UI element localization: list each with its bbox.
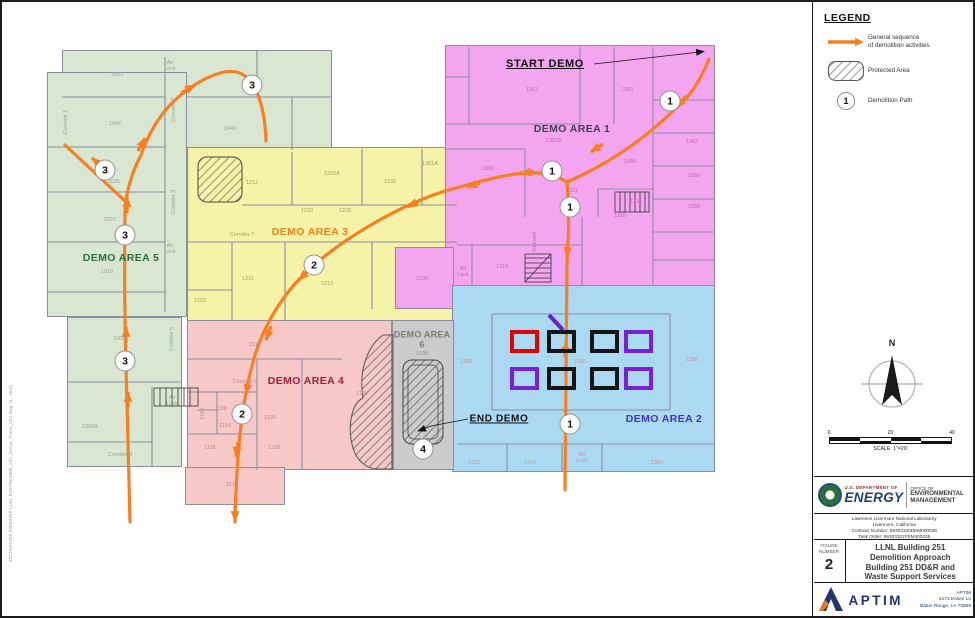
- demo-area-3-label: DEMO AREA 3: [272, 226, 349, 238]
- room-label: 1354: [651, 460, 663, 466]
- legend-item-label: General sequence of demolition activitie…: [868, 34, 930, 50]
- scale-caption: SCALE: 1"=20': [829, 446, 952, 452]
- path-marker: 3: [115, 225, 136, 246]
- room-label: Corridor 2: [171, 98, 177, 122]
- room-label: 1211: [242, 276, 254, 282]
- room-label: 1358: [688, 204, 700, 210]
- room-label: Air Lock: [575, 452, 589, 464]
- figure-label: NUMBER: [814, 549, 845, 555]
- room-label: Air Lock: [163, 60, 177, 72]
- room-label: 1203: [194, 298, 206, 304]
- room-label: 1314: [524, 460, 536, 466]
- equipment-square-purple: [510, 367, 539, 390]
- legend-item-label: Demolition Path: [868, 97, 912, 105]
- demo-area-4-label: DEMO AREA 4: [268, 375, 345, 387]
- room-label: 1102: [200, 408, 206, 420]
- room-label: 1005: [113, 336, 125, 342]
- north-label: N: [889, 338, 896, 348]
- equipment-tick: [549, 315, 563, 330]
- room-label: Corridor 1: [63, 110, 69, 134]
- room-label: 1360: [688, 173, 700, 179]
- path-marker: 2: [304, 255, 325, 276]
- room-label: 1019: [101, 269, 113, 275]
- equipment-square-red: [510, 330, 539, 353]
- north-arrow: [861, 355, 923, 407]
- room-label: 1228: [339, 208, 351, 214]
- equipment-square-black: [590, 367, 619, 390]
- demo-area-6-label: DEMO AREA 6: [393, 330, 451, 351]
- room-label: Corridor 3: [171, 190, 177, 214]
- room-label: Corridor 7: [230, 232, 254, 238]
- room-label: 1150: [356, 391, 368, 397]
- end-demo-label: END DEMO: [470, 414, 529, 425]
- equipment-square-purple: [624, 330, 653, 353]
- room-label: 1114: [219, 423, 230, 429]
- doe-wordmark: ENERGY: [845, 491, 904, 505]
- laboratory-info: Lawrence Livermore National Laboratory L…: [814, 513, 975, 539]
- room-label: 1053: [111, 72, 123, 78]
- room-label: 1313: [526, 87, 538, 93]
- drawing-sheet: 2023\501806.00003459 LLNL B251\501806_25…: [0, 0, 975, 618]
- path-marker: 1: [560, 197, 581, 218]
- room-label: 1312: [468, 460, 480, 466]
- title-line: Demolition Approach: [846, 553, 975, 563]
- aptim-wordmark: APTIM: [849, 593, 904, 608]
- room-label: 1212: [246, 180, 258, 186]
- room-label: 1117: [249, 342, 260, 348]
- room-label: 1320: [574, 359, 586, 365]
- room-label: 1356: [686, 357, 698, 363]
- title-line: LLNL Building 251: [846, 543, 975, 553]
- legend-item-sequence: General sequence of demolition activitie…: [824, 34, 930, 50]
- room-label: 1001A: [82, 424, 98, 430]
- room-label: 1118: [226, 482, 237, 488]
- doe-seal-icon: [818, 483, 842, 507]
- equipment-square-black: [590, 330, 619, 353]
- room-label: 1105: [416, 351, 428, 357]
- title-line: Waste Support Services: [846, 572, 975, 582]
- room-label: Corridor 4: [108, 452, 132, 458]
- room-label: Air Lock: [163, 243, 177, 255]
- aptim-address: APTIM 4171 Essen Ln Baton Rouge, LA 7080…: [920, 591, 971, 610]
- room-label: 1108: [215, 406, 227, 412]
- aptim-row: APTIM APTIM 4171 Essen Ln Baton Rouge, L…: [814, 582, 975, 618]
- legend-item-path: 1 Demolition Path: [824, 92, 930, 110]
- room-label: 1219: [321, 281, 333, 287]
- room-label: 1027: [104, 217, 116, 223]
- scale-tick: 40: [949, 430, 955, 436]
- path-marker: 3: [95, 160, 116, 181]
- office-line2: MANAGEMENT: [910, 498, 964, 505]
- legend: LEGEND General sequence of demolition ac…: [824, 12, 930, 110]
- room-label: 1302: [460, 359, 472, 365]
- title-line: Building 251 DD&R and: [846, 563, 975, 573]
- room-label: Air Lock: [165, 395, 179, 407]
- drawing-title: LLNL Building 251 Demolition Approach Bu…: [846, 540, 975, 582]
- doe-logo-row: U.S. DEPARTMENT OF ENERGY OFFICE OF ENVI…: [814, 476, 975, 513]
- room-label: 1331: [630, 199, 642, 205]
- figure-number: 2: [814, 556, 845, 573]
- room-label: 1301A: [422, 161, 438, 167]
- path-marker: 1: [560, 414, 581, 435]
- figure-title-row: FIGURE NUMBER 2 LLNL Building 251 Demoli…: [814, 539, 975, 582]
- equipment-square-purple: [624, 367, 653, 390]
- legend-title: LEGEND: [824, 12, 930, 24]
- room-label: 1301: [482, 166, 494, 172]
- path-marker: 1: [660, 91, 681, 112]
- scale-bar-graphic: [829, 437, 952, 444]
- path-marker: 1: [542, 161, 563, 182]
- room-label: 1116: [204, 445, 215, 451]
- scale-bar: 0 20 40 SCALE: 1"=20': [829, 430, 952, 452]
- room-label: 1049: [224, 126, 236, 132]
- path-marker: 4: [413, 439, 434, 460]
- figure-number-cell: FIGURE NUMBER 2: [814, 540, 846, 582]
- demolition-path-icon: 1: [824, 92, 868, 110]
- start-demo-label: START DEMO: [506, 58, 584, 70]
- path-marker: 2: [232, 404, 253, 425]
- protected-area-icon: [824, 60, 868, 82]
- room-label: 1047: [109, 121, 121, 127]
- equipment-square-black: [547, 330, 576, 353]
- scale-tick: 20: [888, 430, 894, 436]
- room-label: 1359: [624, 159, 636, 165]
- path-marker: 3: [115, 351, 136, 372]
- room-label: Corridor 6: [233, 379, 257, 385]
- room-label: 1226A: [324, 171, 340, 177]
- room-label: 1321: [566, 188, 578, 194]
- scale-tick: 0: [828, 430, 831, 436]
- room-label: 1130: [264, 415, 276, 421]
- equipment-square-black: [547, 367, 576, 390]
- demo-area-2-label: DEMO AREA 2: [626, 413, 703, 425]
- room-label: Stairwell: [532, 232, 538, 253]
- room-label: 1128: [268, 445, 280, 451]
- room-label: 1363: [621, 87, 633, 93]
- room-label: 1318: [614, 213, 626, 219]
- room-label: 1232: [384, 179, 396, 185]
- demo-area-5-label: DEMO AREA 5: [83, 252, 160, 264]
- drawing-file-stamp: 2023\501806.00003459 LLNL B251\501806_25…: [8, 42, 13, 562]
- room-label: Air Lock: [456, 266, 470, 278]
- demo-area-1-label: DEMO AREA 1: [534, 123, 611, 135]
- doe-office-divider: [906, 482, 907, 508]
- legend-item-label: Protected Area: [868, 67, 910, 75]
- room-label: Corridor 5: [169, 327, 175, 351]
- room-label: 1235: [416, 276, 428, 282]
- legend-item-protected: Protected Area: [824, 60, 930, 82]
- room-label: 1035: [108, 179, 120, 185]
- room-label: 1362: [686, 139, 698, 145]
- room-label: 1310: [496, 264, 508, 270]
- path-marker: 3: [242, 75, 263, 96]
- room-label: 1220: [301, 208, 313, 214]
- room-label: 1301B: [546, 138, 562, 144]
- sequence-arrow-icon: [824, 37, 868, 47]
